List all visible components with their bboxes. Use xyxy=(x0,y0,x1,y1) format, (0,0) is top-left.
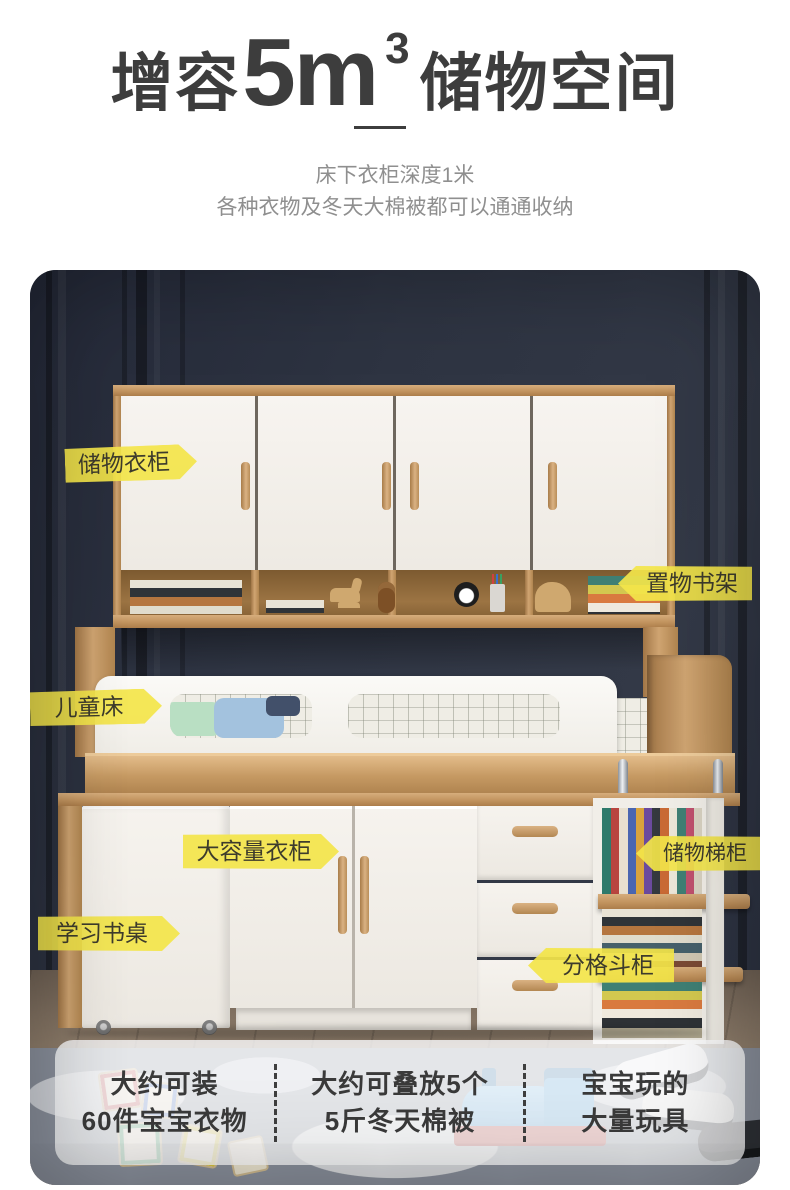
product-photo: 储物衣柜 置物书架 儿童床 大容量衣柜 学习书桌 储物梯柜 分格斗柜 大约可装 … xyxy=(30,270,760,1185)
upper-cabinet-bottom-board xyxy=(113,615,675,628)
rail-cutout-window xyxy=(348,694,560,738)
wardrobe-handle xyxy=(360,856,369,934)
ladder-right-panel xyxy=(706,798,724,1044)
book-stack xyxy=(266,600,324,613)
label-text: 学习书桌 xyxy=(56,920,148,946)
title-divider-line xyxy=(354,126,406,129)
drawer-face xyxy=(477,806,593,880)
folded-clothes-navy xyxy=(266,696,300,716)
cabinet-door xyxy=(258,396,392,570)
stat-line-1: 大约可装 xyxy=(55,1066,274,1103)
title-superscript: 3 xyxy=(385,24,409,74)
furniture-floor-shadow xyxy=(66,1026,706,1040)
label-text: 分格斗柜 xyxy=(562,952,654,978)
bed-footboard xyxy=(647,655,732,758)
subtitle: 床下衣柜深度1米 各种衣物及冬天大棉被都可以通通收纳 xyxy=(0,160,790,224)
upper-cabinet-doors xyxy=(121,396,667,570)
door-handle xyxy=(410,462,419,510)
cabinet-shadow xyxy=(121,628,667,670)
capacity-stat-toys: 宝宝玩的 大量玩具 xyxy=(526,1066,745,1140)
rail-cutout-window xyxy=(170,694,312,738)
door-handle xyxy=(241,462,250,510)
promo-page: 增容5m3储物空间 床下衣柜深度1米 各种衣物及冬天大棉被都可以通通收纳 xyxy=(0,0,790,1190)
stat-line-2: 大量玩具 xyxy=(526,1103,745,1140)
title-volume: 5m xyxy=(242,18,377,128)
title-suffix: 储物空间 xyxy=(420,33,680,124)
upper-cabinet-left-frame xyxy=(113,396,121,627)
drawer-face xyxy=(477,883,593,957)
wardrobe-handle xyxy=(338,856,347,934)
page-title: 增容5m3储物空间 xyxy=(0,18,790,128)
capacity-stat-quilts: 大约可叠放5个 5斤冬天棉被 xyxy=(277,1066,523,1140)
ladder-shelf-board xyxy=(598,894,750,909)
toy-elephant xyxy=(535,582,571,612)
label-text: 储物梯柜 xyxy=(663,842,747,865)
label-study-desk: 学习书桌 xyxy=(38,916,180,951)
door-handle xyxy=(548,462,557,510)
label-display-shelf: 置物书架 xyxy=(618,566,752,601)
stat-line-2: 60件宝宝衣物 xyxy=(55,1103,274,1140)
label-text: 置物书架 xyxy=(646,570,738,596)
stat-line-2: 5斤冬天棉被 xyxy=(277,1103,523,1140)
label-kids-bed: 儿童床 xyxy=(30,688,162,726)
shelf-divider xyxy=(251,570,259,615)
wardrobe-door-seam xyxy=(352,806,355,1008)
stat-line-1: 大约可叠放5个 xyxy=(277,1066,523,1103)
label-storage-wardrobe: 储物衣柜 xyxy=(64,444,197,484)
title-prefix: 增容 xyxy=(110,33,240,124)
label-text: 儿童床 xyxy=(54,693,124,721)
label-compartment-drawer: 分格斗柜 xyxy=(528,948,674,983)
label-text: 大容量衣柜 xyxy=(197,838,312,864)
alarm-clock xyxy=(454,582,479,607)
door-handle xyxy=(382,462,391,510)
capacity-stat-clothes: 大约可装 60件宝宝衣物 xyxy=(55,1066,274,1140)
label-large-wardrobe: 大容量衣柜 xyxy=(183,834,339,869)
cabinet-door xyxy=(121,396,255,570)
toy-monkey xyxy=(378,582,395,613)
shelf-divider xyxy=(525,570,533,615)
capacity-panel: 大约可装 60件宝宝衣物 大约可叠放5个 5斤冬天棉被 宝宝玩的 大量玩具 xyxy=(55,1040,745,1165)
subtitle-line-2: 各种衣物及冬天大棉被都可以通通收纳 xyxy=(0,192,790,224)
label-text: 储物衣柜 xyxy=(78,449,171,478)
upper-cabinet-top-frame xyxy=(113,385,675,396)
pencil-cup xyxy=(490,584,505,612)
subtitle-line-1: 床下衣柜深度1米 xyxy=(0,160,790,192)
label-storage-ladder-cabinet: 储物梯柜 xyxy=(636,836,760,871)
drawer-handle xyxy=(512,826,558,837)
drawer-handle xyxy=(512,903,558,914)
stat-line-1: 宝宝玩的 xyxy=(526,1066,745,1103)
book-stack xyxy=(130,580,242,614)
